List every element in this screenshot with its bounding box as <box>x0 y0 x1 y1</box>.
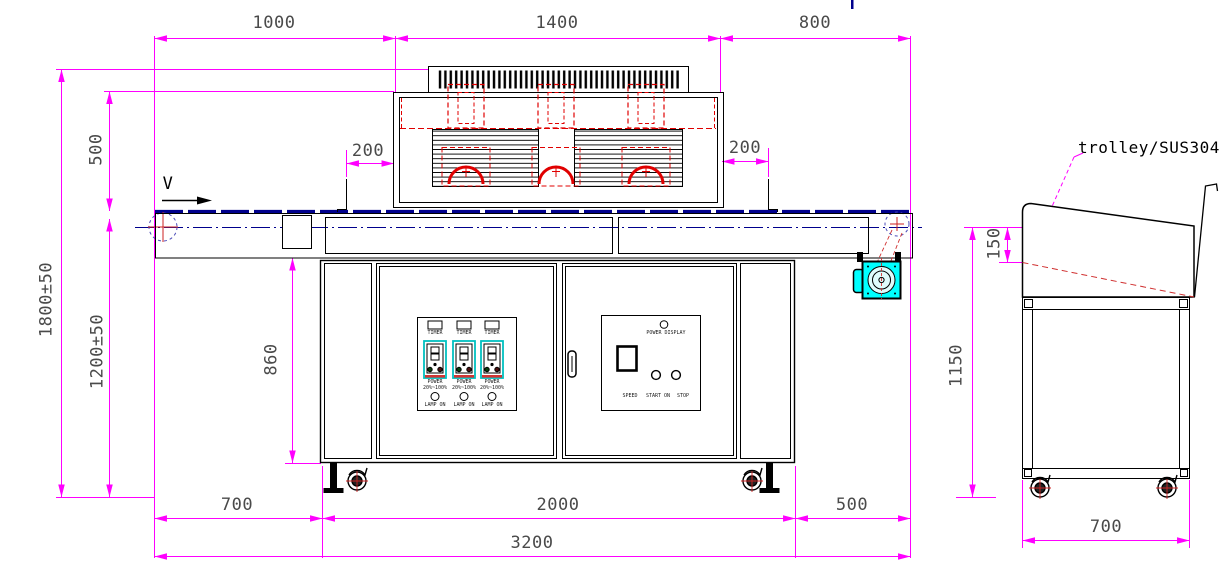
uv-lamp-housing <box>338 67 778 213</box>
dim-1200-label: 1200±50 <box>90 307 107 397</box>
dim-top-mid-label: 1400 <box>517 15 597 32</box>
lamp-on-label: LAMP ON <box>475 403 509 408</box>
drive-motor <box>854 230 903 299</box>
dim-bottom-left-label: 700 <box>197 497 277 514</box>
conveyor-frame <box>156 214 913 259</box>
heat-sink-left <box>433 130 539 187</box>
dim-lamp-right-label: 200 <box>715 140 775 157</box>
stop-button <box>672 371 681 380</box>
dim-total-length-label: 3200 <box>492 535 572 552</box>
exit-shield <box>769 179 778 212</box>
dim-top-right-label: 800 <box>775 15 855 32</box>
drawing-linework <box>0 0 1224 579</box>
engineering-drawing: 1000 1400 800 200 200 500 1800±50 1200±5… <box>0 0 1224 579</box>
dim-trolley-width-label: 700 <box>1066 519 1146 536</box>
conveyor-belt-line <box>135 0 922 241</box>
machine-feet <box>324 463 780 493</box>
dim-bottom-right-label: 500 <box>812 497 892 514</box>
cursor-tick <box>851 0 854 9</box>
dim-150-label: 150 <box>987 216 1004 272</box>
speed-display <box>618 347 637 371</box>
trolley-tray <box>1023 204 1195 298</box>
dim-top-left-label: 1000 <box>234 15 314 32</box>
power-display-indicator <box>660 321 668 329</box>
control-cabinet <box>321 261 795 463</box>
direction-arrow-icon <box>162 197 212 205</box>
lamp-on-indicator <box>431 393 439 401</box>
dim-1150-label: 1150 <box>949 338 966 394</box>
sensor-bracket <box>283 216 312 249</box>
dim-500-label: 500 <box>89 122 106 178</box>
lamp-on-indicator <box>460 393 468 401</box>
dim-860-label: 860 <box>264 330 281 390</box>
trolley-flap <box>1195 184 1218 297</box>
casters <box>346 468 1178 499</box>
stop-label: STOP <box>663 394 703 399</box>
dim-1800-label: 1800±50 <box>39 255 56 345</box>
power-display-label: POWER DISPLAY <box>631 331 701 336</box>
trolley-label: trolley/SUS304 <box>1078 140 1224 156</box>
right-door <box>563 264 737 459</box>
direction-label: V <box>158 176 178 193</box>
lamp-on-indicator <box>488 393 496 401</box>
trolley <box>1023 184 1218 479</box>
lamp-unit <box>532 85 580 187</box>
extension-lines <box>56 36 1190 558</box>
power-range-label: 20%~100% <box>475 386 509 391</box>
dim-cabinet-width-label: 2000 <box>518 497 598 514</box>
start-button <box>652 371 661 380</box>
caster-icon <box>346 468 368 492</box>
timer-label: TIMER <box>475 331 509 336</box>
dim-lamp-left-label: 200 <box>338 143 398 160</box>
entry-shield <box>338 179 347 212</box>
dimension-lines <box>62 39 1190 557</box>
